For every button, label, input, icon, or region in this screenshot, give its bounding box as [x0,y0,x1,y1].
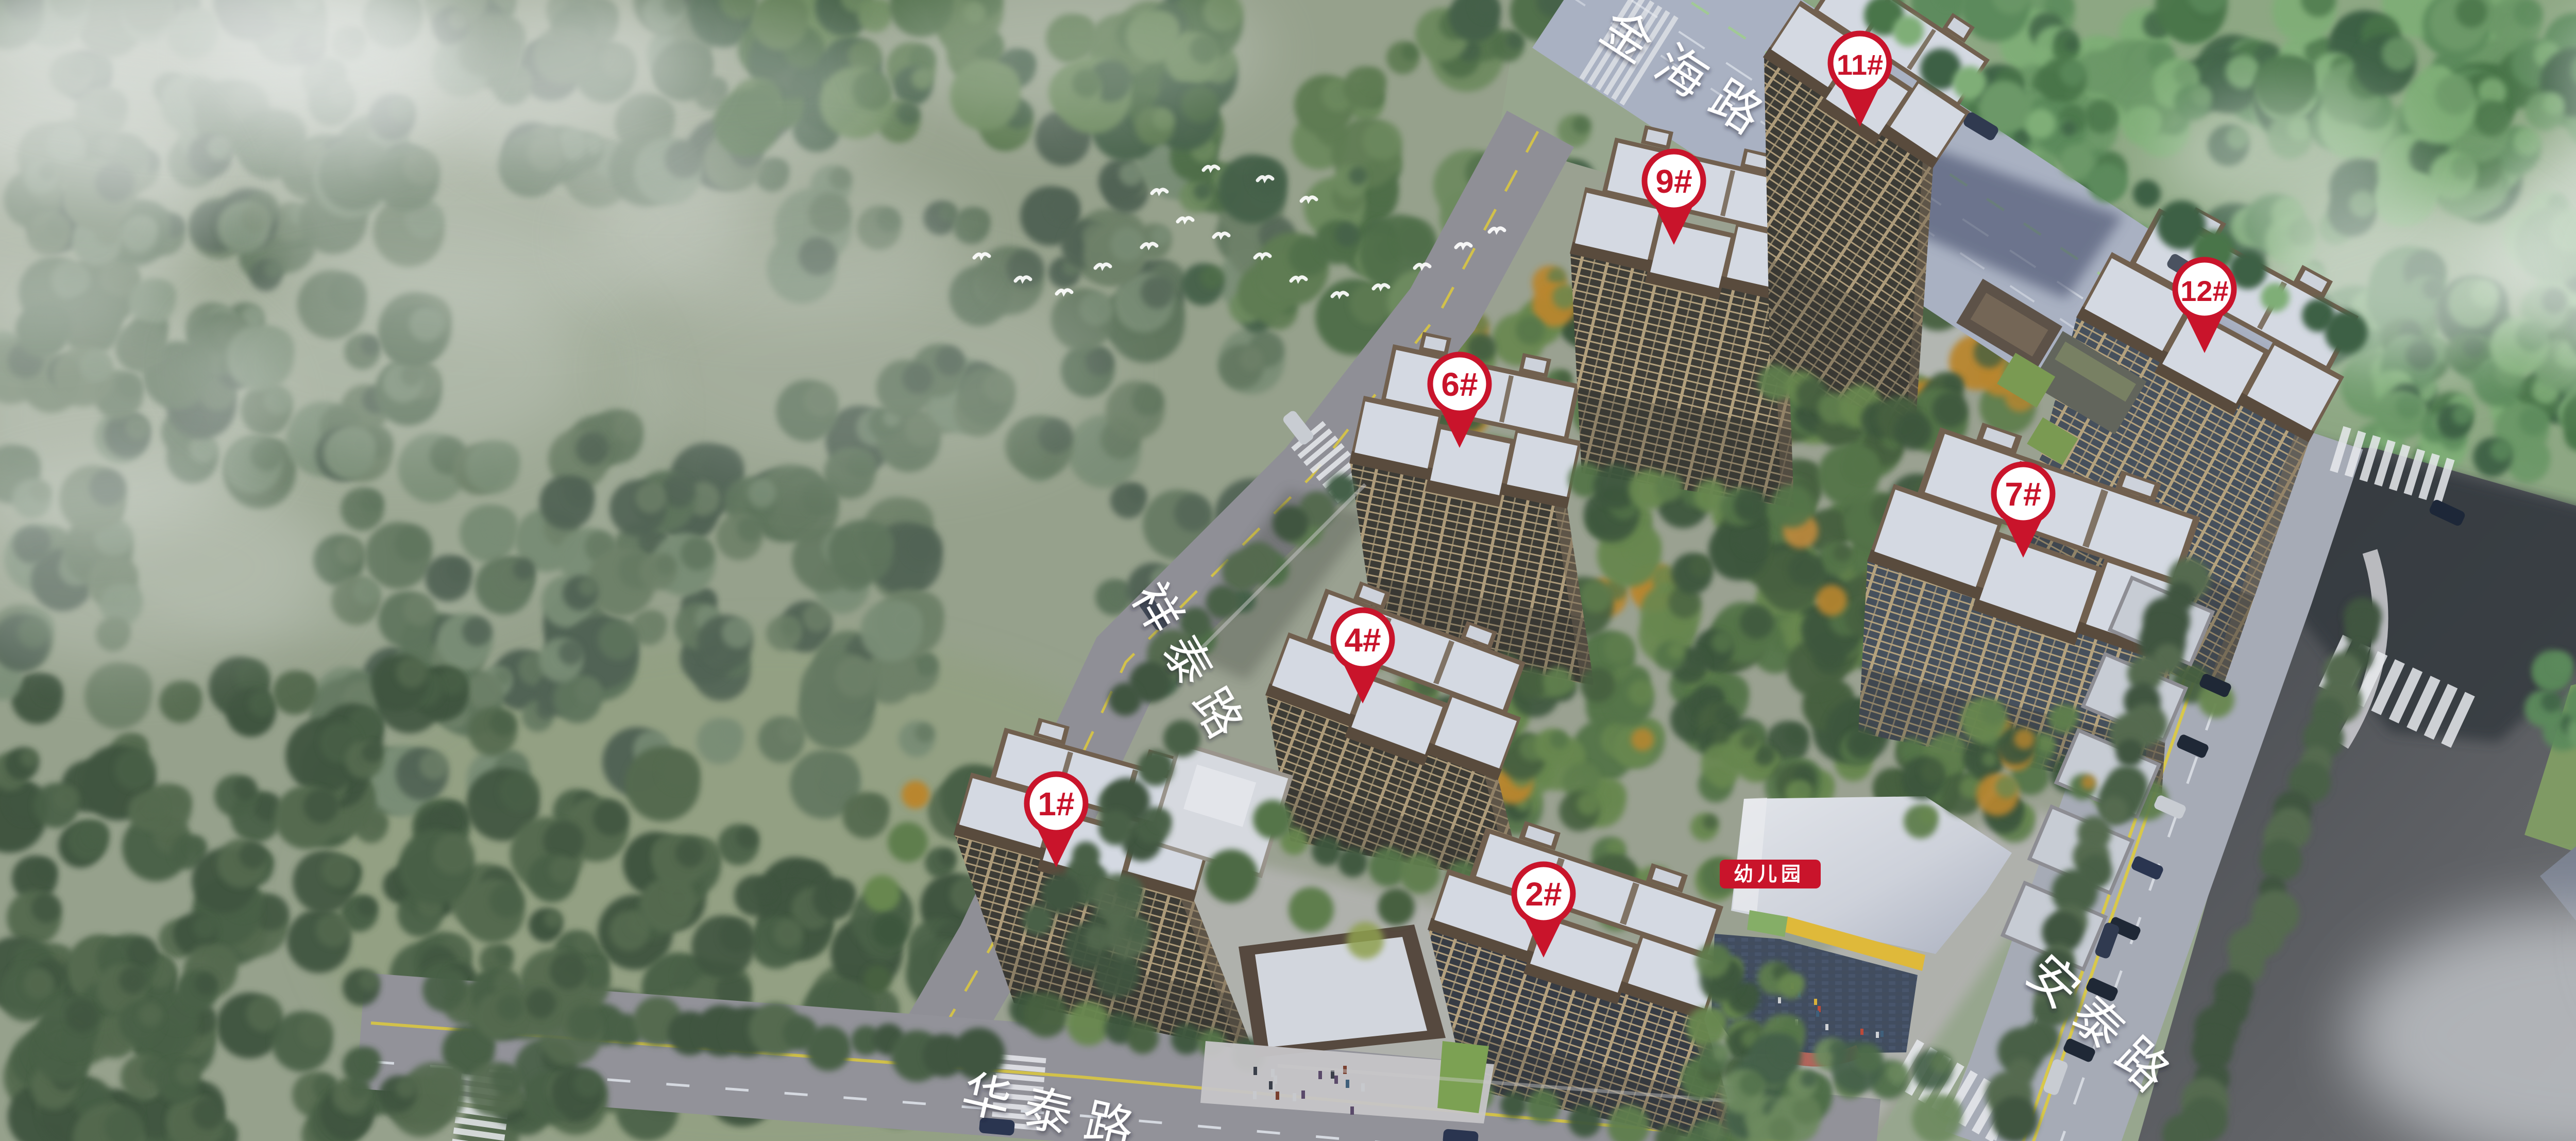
svg-text:6#: 6# [1441,366,1478,403]
svg-text:9#: 9# [1655,163,1692,200]
svg-text:4#: 4# [1344,622,1381,659]
svg-text:7#: 7# [2005,476,2041,513]
svg-text:幼儿园: 幼儿园 [1734,864,1805,885]
svg-text:2#: 2# [1525,876,1562,913]
svg-text:1#: 1# [1038,785,1074,823]
svg-text:12#: 12# [2180,275,2228,307]
svg-text:11#: 11# [1837,48,1883,81]
